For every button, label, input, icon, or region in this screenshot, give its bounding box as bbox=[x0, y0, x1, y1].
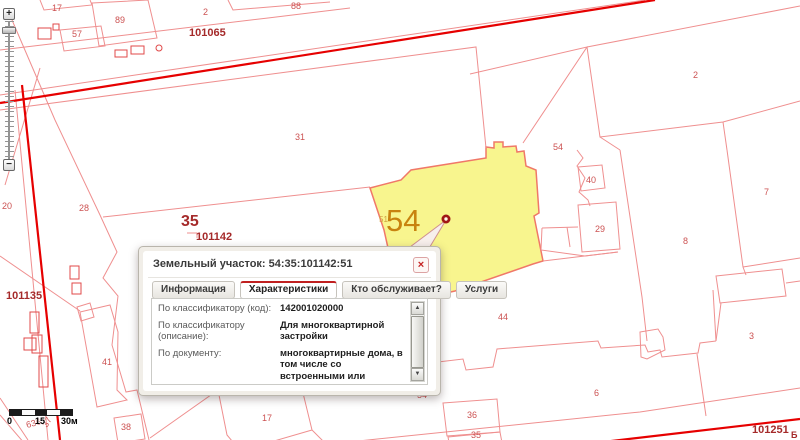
scale-bar-segments bbox=[9, 409, 73, 416]
zoom-out-button[interactable]: − bbox=[3, 159, 15, 171]
map-label: Б bbox=[791, 430, 798, 440]
scrollbar[interactable]: ▲ ▼ bbox=[410, 301, 425, 382]
map-label: 101065 bbox=[189, 27, 226, 39]
map-label: 40 bbox=[586, 175, 596, 185]
scale-label-start: 0 bbox=[7, 416, 12, 427]
map-label: 2 bbox=[203, 7, 208, 17]
popup-inner-panel: Земельный участок: 54:35:101142:51 × Инф… bbox=[143, 251, 436, 391]
map-label: 7 bbox=[764, 187, 769, 197]
attribute-row: По документу: многоквартирные дома, в то… bbox=[158, 348, 405, 386]
map-canvas[interactable]: 1789572881010653125440298728203510114210… bbox=[0, 0, 800, 440]
map-label: 31 bbox=[295, 132, 305, 142]
attribute-value: 142001020000 bbox=[280, 303, 405, 315]
map-label: 35 bbox=[181, 213, 199, 230]
zoom-slider-track[interactable] bbox=[5, 21, 14, 167]
scroll-up-icon[interactable]: ▲ bbox=[411, 302, 424, 315]
tab-services[interactable]: Услуги bbox=[456, 281, 507, 299]
scale-bar: 0 15 30м bbox=[9, 409, 73, 427]
tab-who-services[interactable]: Кто обслуживает? bbox=[342, 281, 451, 299]
tab-characteristics[interactable]: Характеристики bbox=[240, 281, 337, 299]
map-label: 101135 bbox=[6, 290, 42, 302]
map-label: 38 bbox=[121, 422, 131, 432]
map-label: 2 bbox=[693, 70, 698, 80]
popup-content: По классификатору (код): 142001020000 По… bbox=[151, 298, 428, 385]
zoom-slider-handle[interactable] bbox=[2, 27, 16, 34]
map-label: 54 bbox=[386, 203, 420, 238]
attribute-label: По классификатору (код): bbox=[158, 303, 280, 315]
attribute-label: По документу: bbox=[158, 348, 280, 386]
attribute-value: многоквартирные дома, в том числе со вст… bbox=[280, 348, 405, 386]
attribute-label: По классификатору (описание): bbox=[158, 320, 280, 343]
scale-label-mid: 15 bbox=[35, 416, 45, 427]
map-label: 41 bbox=[102, 357, 112, 367]
zoom-control: + − bbox=[2, 7, 18, 173]
map-label: 35 bbox=[471, 430, 481, 440]
parcel-marker[interactable] bbox=[442, 215, 451, 224]
map-label: 6 bbox=[594, 388, 599, 398]
scroll-down-icon[interactable]: ▼ bbox=[411, 368, 424, 381]
map-label: 101142 bbox=[196, 231, 232, 243]
map-label: 17 bbox=[262, 413, 272, 423]
attribute-value: Для многоквартирной застройки bbox=[280, 320, 405, 343]
tab-information[interactable]: Информация bbox=[152, 281, 235, 299]
popup-title: Земельный участок: 54:35:101142:51 bbox=[153, 258, 352, 270]
popup-tabs: Информация Характеристики Кто обслуживае… bbox=[152, 281, 507, 299]
map-label: 57 bbox=[72, 29, 82, 39]
map-label: 20 bbox=[2, 201, 12, 211]
map-label: 17 bbox=[52, 3, 62, 13]
map-label: 89 bbox=[115, 15, 125, 25]
map-label: 88 bbox=[291, 1, 301, 11]
map-label: 101251 bbox=[752, 424, 789, 436]
zoom-in-button[interactable]: + bbox=[3, 8, 15, 20]
parcel-info-popup: Земельный участок: 54:35:101142:51 × Инф… bbox=[138, 246, 441, 396]
attribute-row: По классификатору (описание): Для многок… bbox=[158, 320, 405, 343]
map-label: 3 bbox=[749, 331, 754, 341]
close-icon[interactable]: × bbox=[413, 257, 429, 273]
map-label: 8 bbox=[683, 236, 688, 246]
map-label: 36 bbox=[467, 410, 477, 420]
map-label: 44 bbox=[498, 312, 508, 322]
map-label: 29 bbox=[595, 224, 605, 234]
map-label: 28 bbox=[79, 203, 89, 213]
scale-label-end: 30м bbox=[61, 416, 78, 427]
scrollbar-thumb[interactable] bbox=[411, 316, 424, 368]
popup-divider bbox=[148, 277, 431, 278]
map-label: 54 bbox=[553, 142, 563, 152]
attribute-row: По классификатору (код): 142001020000 bbox=[158, 303, 405, 315]
